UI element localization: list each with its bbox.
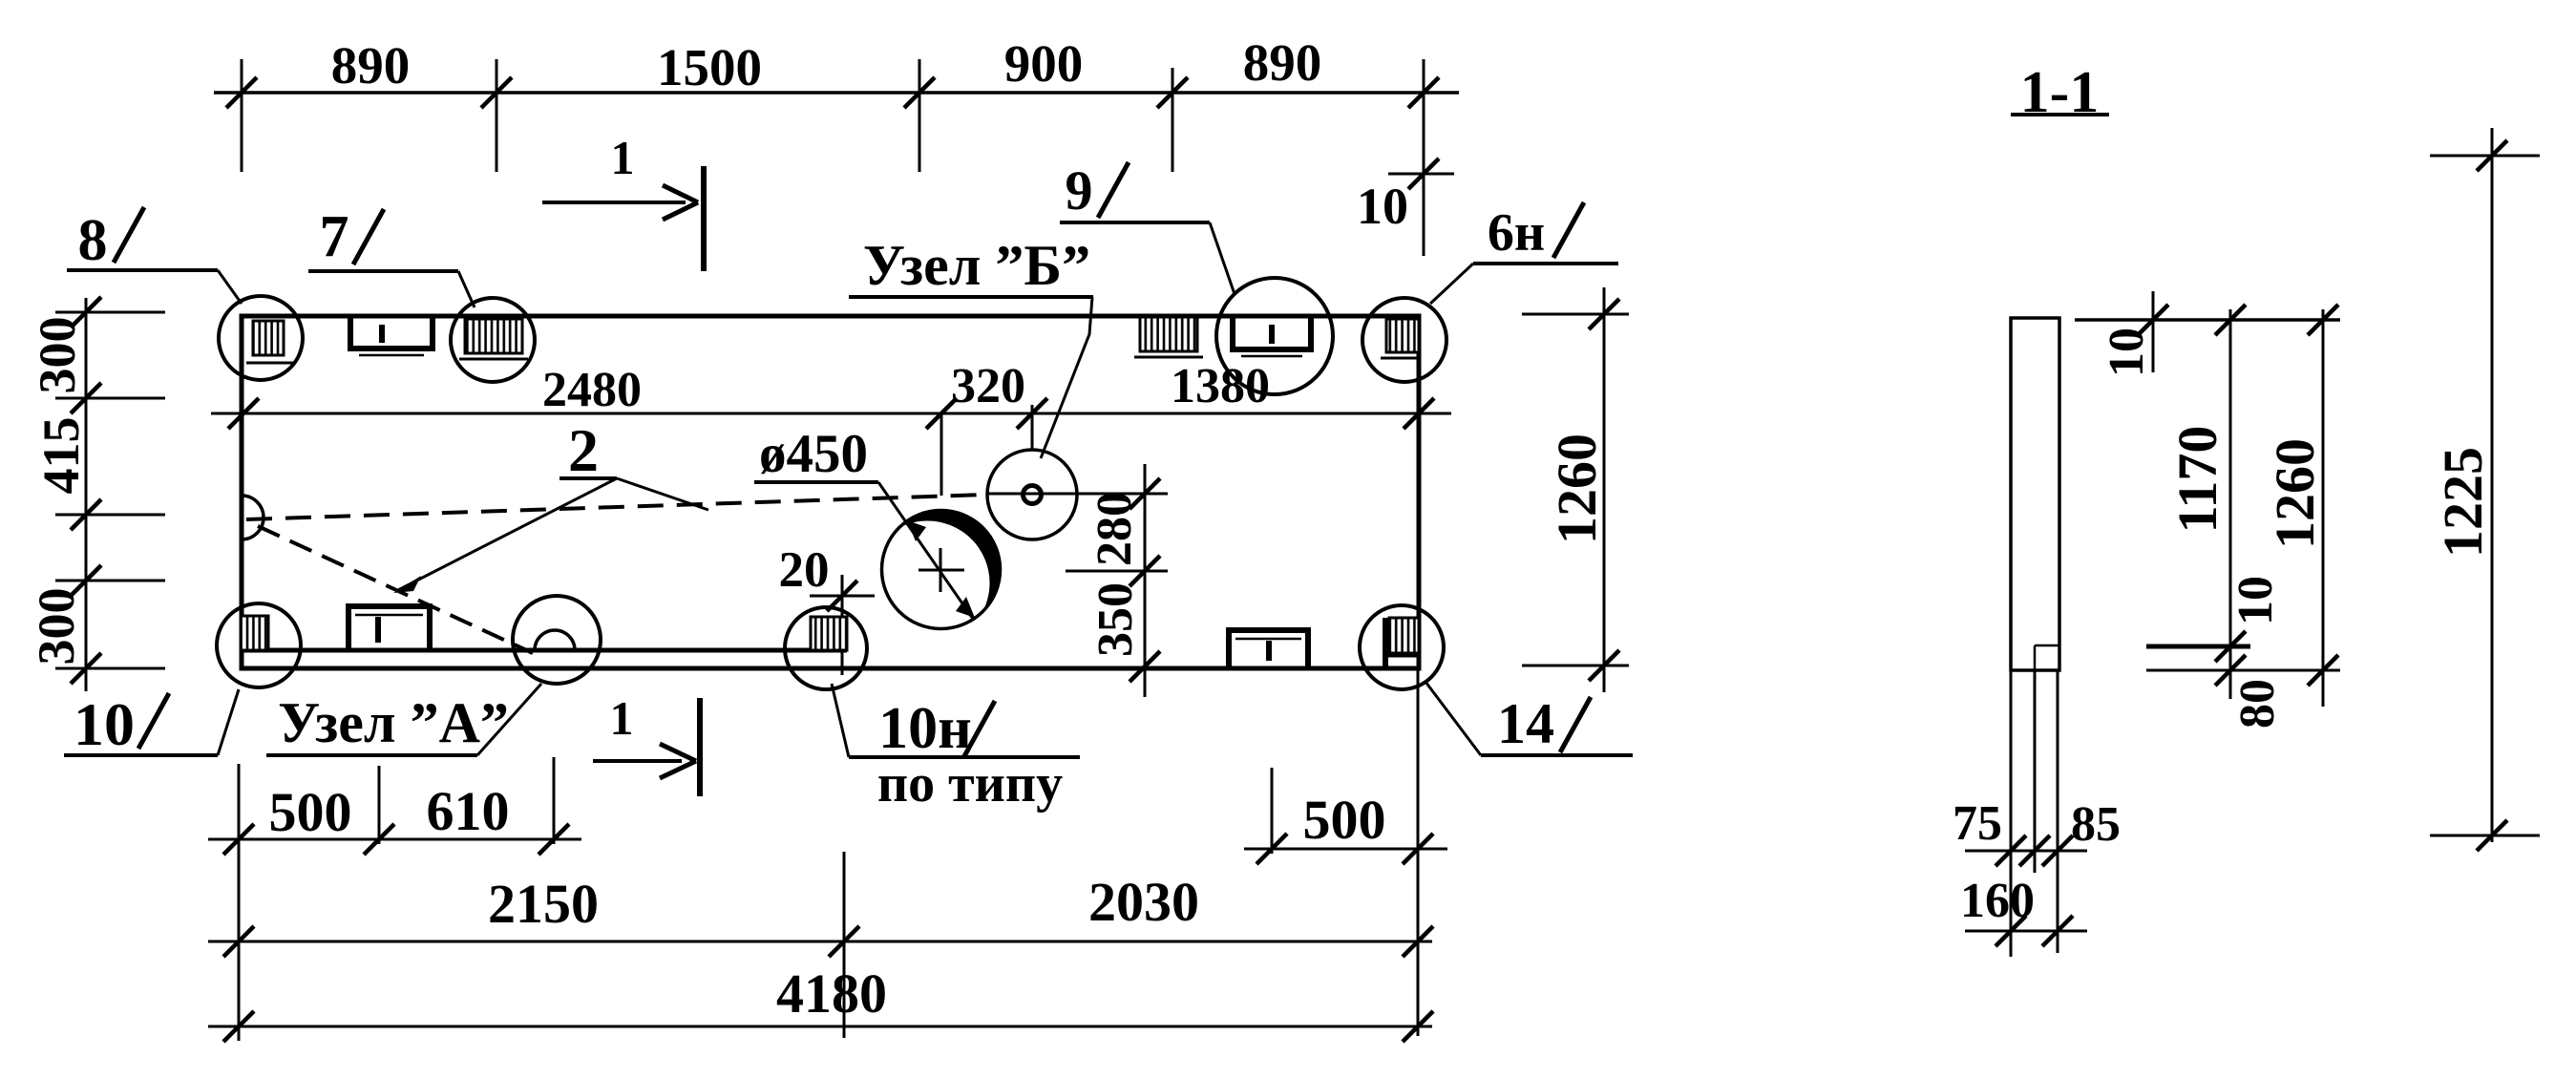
svg-text:10: 10 xyxy=(1357,178,1408,235)
svg-text:900: 900 xyxy=(1004,34,1084,93)
svg-text:1225: 1225 xyxy=(2432,447,2494,558)
svg-text:10: 10 xyxy=(2100,328,2154,377)
svg-text:75: 75 xyxy=(1953,796,2002,851)
svg-text:ø450: ø450 xyxy=(759,424,868,484)
svg-text:160: 160 xyxy=(1960,874,2035,928)
svg-text:2480: 2480 xyxy=(542,363,642,417)
svg-text:1260: 1260 xyxy=(2264,438,2326,549)
svg-text:1380: 1380 xyxy=(1171,359,1270,413)
svg-text:8: 8 xyxy=(78,208,108,273)
svg-text:280: 280 xyxy=(1087,492,1142,566)
svg-text:2150: 2150 xyxy=(488,873,599,935)
svg-text:1500: 1500 xyxy=(657,38,762,96)
svg-text:500: 500 xyxy=(1303,789,1386,851)
svg-text:300: 300 xyxy=(28,588,85,666)
svg-text:по типу: по типу xyxy=(877,754,1063,814)
svg-text:2: 2 xyxy=(568,416,599,484)
svg-text:500: 500 xyxy=(269,781,352,843)
svg-text:350: 350 xyxy=(1088,582,1143,657)
svg-text:320: 320 xyxy=(951,359,1025,413)
svg-text:890: 890 xyxy=(1243,33,1322,92)
svg-text:Узел ”A”: Узел ”A” xyxy=(278,691,509,754)
svg-text:14: 14 xyxy=(1497,692,1554,755)
svg-text:10: 10 xyxy=(2228,576,2283,625)
svg-text:4180: 4180 xyxy=(776,962,887,1025)
svg-text:1260: 1260 xyxy=(1546,433,1608,544)
svg-text:415: 415 xyxy=(32,417,90,495)
svg-text:80: 80 xyxy=(2230,679,2285,729)
svg-text:1: 1 xyxy=(610,691,634,745)
svg-text:6н: 6н xyxy=(1488,203,1545,263)
svg-text:10н: 10н xyxy=(878,696,972,761)
svg-text:1: 1 xyxy=(611,131,635,184)
svg-text:610: 610 xyxy=(427,780,510,842)
svg-text:890: 890 xyxy=(331,36,411,95)
svg-text:20: 20 xyxy=(779,542,830,598)
svg-text:1170: 1170 xyxy=(2166,426,2228,534)
svg-text:9: 9 xyxy=(1066,159,1093,222)
svg-text:300: 300 xyxy=(29,317,86,394)
svg-text:7: 7 xyxy=(320,204,349,269)
svg-text:85: 85 xyxy=(2071,797,2121,852)
svg-text:2030: 2030 xyxy=(1088,871,1199,933)
svg-text:10: 10 xyxy=(74,690,135,758)
svg-text:Узел ”Б”: Узел ”Б” xyxy=(863,234,1090,297)
